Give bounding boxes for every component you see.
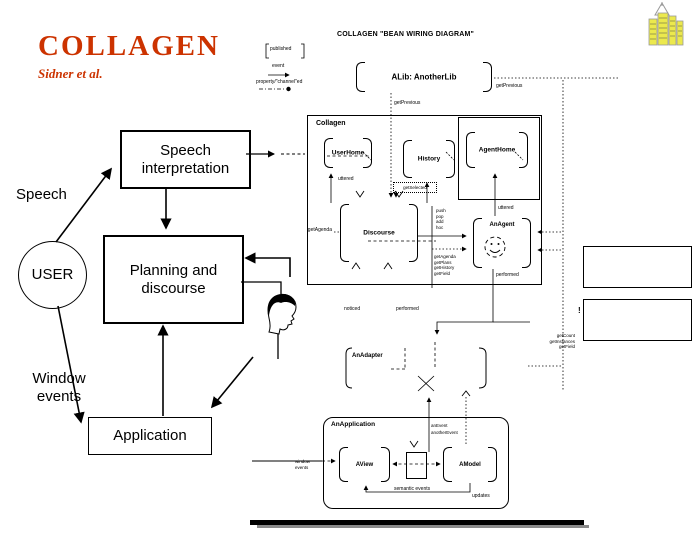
right-methods-list: getCount getInstances getField bbox=[527, 333, 575, 350]
wire bbox=[56, 169, 111, 242]
updates-label: updates bbox=[472, 493, 490, 499]
page-subtitle: Sidner et al. bbox=[38, 66, 103, 82]
right-bean-2 bbox=[583, 299, 692, 341]
discourse-bean: Discourse bbox=[340, 204, 418, 262]
performed-label: performed bbox=[396, 306, 419, 312]
agent-home-label: AgentHome bbox=[468, 146, 526, 153]
noticed-label: noticed bbox=[344, 306, 360, 312]
wire bbox=[268, 294, 295, 316]
planning-discourse-label: Planning and discourse bbox=[121, 262, 226, 297]
window-events-label: Window events bbox=[18, 370, 100, 406]
wire bbox=[479, 348, 486, 388]
planning-discourse-box: Planning and discourse bbox=[103, 235, 244, 324]
agent-home-bean: AgentHome bbox=[466, 132, 528, 168]
legend-event-label: event bbox=[272, 63, 284, 69]
history-label: History bbox=[405, 155, 453, 162]
bean-diagram-title: COLLAGEN "BEAN WIRING DIAGRAM" bbox=[337, 31, 474, 40]
wire bbox=[241, 282, 281, 294]
method-item: getField bbox=[527, 344, 575, 350]
window-events-small-label: window events bbox=[295, 459, 323, 470]
an-application-label: AnApplication bbox=[331, 421, 375, 429]
alib-label: ALib: AnotherLib bbox=[358, 72, 490, 81]
an-adapter-label: AnAdapter bbox=[352, 353, 383, 361]
wire bbox=[301, 44, 304, 58]
right-bean-1 bbox=[583, 246, 692, 288]
speech-interpretation-label: Speech interpretation bbox=[131, 142, 241, 177]
a-model-label: AModel bbox=[445, 461, 495, 467]
wire bbox=[418, 376, 434, 391]
wire bbox=[418, 376, 434, 391]
user-label: USER bbox=[32, 266, 74, 283]
history-bean: History bbox=[403, 140, 455, 178]
wire bbox=[268, 295, 296, 334]
method-item: getField bbox=[434, 271, 456, 277]
page-title: COLLAGEN bbox=[38, 30, 220, 63]
wire bbox=[266, 44, 269, 58]
exclamation-label: ! bbox=[578, 306, 581, 316]
alib-bean: ALib: AnotherLib bbox=[356, 62, 492, 92]
legend-property-label: property/"channel"ed bbox=[256, 79, 302, 85]
user-circle: USER bbox=[18, 241, 87, 309]
wire bbox=[287, 87, 291, 91]
a-view-bean: AView bbox=[339, 447, 390, 482]
a-model-bean: AModel bbox=[443, 447, 497, 482]
user-home-label: UserHome bbox=[326, 149, 370, 156]
bottom-rule-shadow bbox=[257, 525, 589, 528]
an-agent-bean: AnAgent bbox=[473, 218, 531, 268]
uttered-agent-label: uttered bbox=[498, 205, 514, 211]
get-previous-top-label: getPrevious bbox=[496, 83, 522, 89]
discourse-label: Discourse bbox=[342, 229, 416, 236]
application-box: Application bbox=[88, 417, 212, 455]
method-item: push bbox=[436, 208, 446, 214]
event-adapter-box bbox=[406, 452, 427, 479]
semantic-events-label: semantic events bbox=[394, 486, 430, 492]
method-item: getAgenda bbox=[434, 254, 456, 260]
performed-agent-label: performed bbox=[496, 272, 519, 278]
wire bbox=[462, 391, 470, 396]
slide: COLLAGEN Sidner et al. Speech interpreta… bbox=[0, 0, 692, 546]
wire bbox=[246, 258, 290, 277]
collagen-label: Collagen bbox=[316, 120, 346, 129]
push-methods-list: push pop add hoc bbox=[436, 208, 446, 231]
user-head-icon bbox=[268, 294, 296, 334]
legend-published-label: published bbox=[270, 46, 291, 52]
get-selected-label: getSelected bbox=[393, 182, 437, 193]
speech-interpretation-box: Speech interpretation bbox=[120, 130, 251, 189]
user-home-bean: UserHome bbox=[324, 138, 372, 168]
university-crest-icon bbox=[647, 2, 685, 50]
method-item: hoc bbox=[436, 225, 446, 231]
get-agenda-label: getAgenda bbox=[292, 227, 332, 233]
speech-label: Speech bbox=[16, 186, 67, 203]
an-agent-label: AnAgent bbox=[475, 222, 529, 228]
application-label: Application bbox=[113, 427, 186, 444]
a-view-label: AView bbox=[341, 461, 388, 467]
get-previous-mid-label: getPrevious bbox=[394, 100, 420, 106]
get-methods-list: getAgenda getPlans getHistory getField bbox=[434, 254, 456, 277]
uttered-user-label: uttered bbox=[338, 176, 354, 182]
wire bbox=[212, 357, 253, 407]
